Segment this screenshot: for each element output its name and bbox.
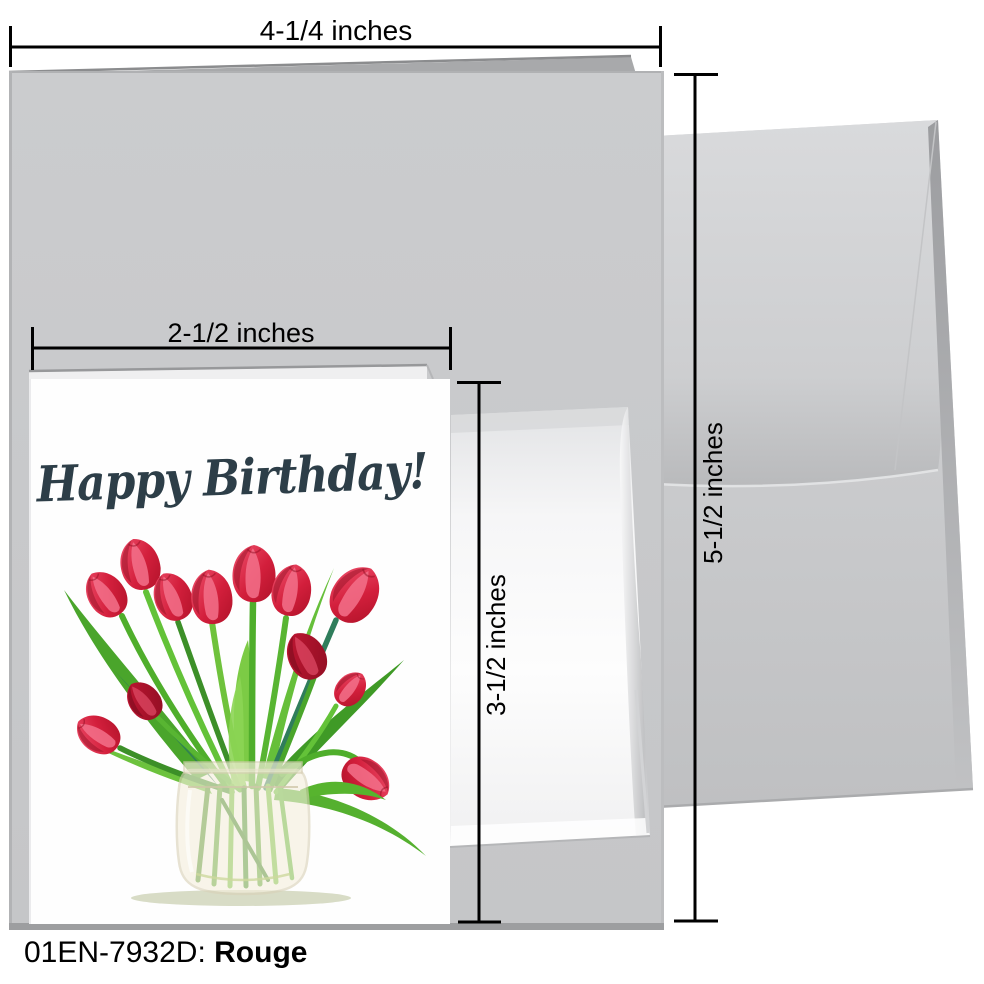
greeting-card-product-preview: 4-1/4 inches 2-1/2 inches 5-1/2 inches 3… bbox=[0, 0, 984, 984]
card-large-left-edge bbox=[9, 71, 12, 929]
card-greeting-text: Happy Birthday! bbox=[28, 422, 435, 537]
product-code: 01EN-7932D: bbox=[24, 936, 206, 969]
dimension-label-large-width: 4-1/4 inches bbox=[160, 15, 512, 47]
jar-rim bbox=[184, 762, 302, 773]
card-large-right-edge bbox=[661, 71, 664, 929]
dimension-label-small-height: 3-1/2 inches bbox=[480, 535, 512, 755]
product-code-label: 01EN-7932D: Rouge bbox=[24, 936, 307, 970]
product-name: Rouge bbox=[214, 936, 307, 969]
dimension-label-small-width: 2-1/2 inches bbox=[66, 317, 416, 349]
glass-jar bbox=[177, 762, 310, 894]
stem bbox=[252, 602, 253, 786]
dimension-label-large-height: 5-1/2 inches bbox=[697, 383, 729, 603]
card-large-bottom-edge bbox=[9, 923, 664, 930]
